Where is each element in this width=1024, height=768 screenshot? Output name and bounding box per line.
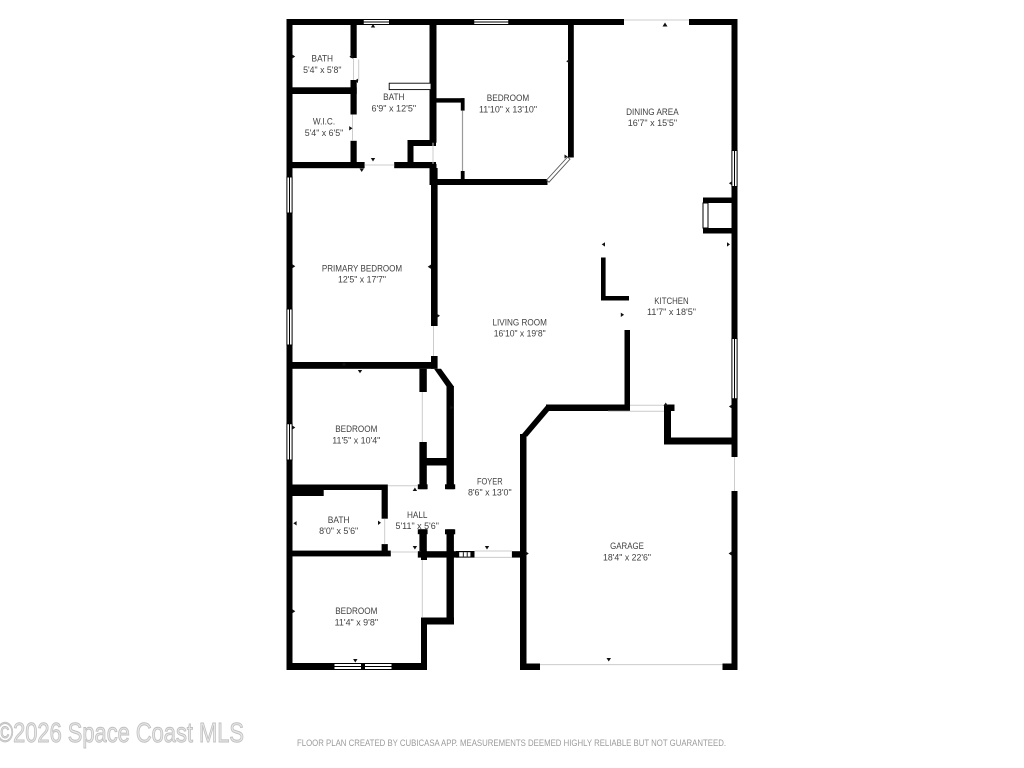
svg-text:18'4" x 22'6": 18'4" x 22'6" <box>603 552 651 562</box>
svg-text:FLOOR PLAN CREATED BY CUBICASA: FLOOR PLAN CREATED BY CUBICASA APP. MEAS… <box>297 738 726 749</box>
svg-text:16'7" x 15'5": 16'7" x 15'5" <box>628 118 677 128</box>
svg-text:FOYER: FOYER <box>477 477 503 487</box>
svg-text:11'5" x 10'4": 11'5" x 10'4" <box>332 435 380 445</box>
svg-text:16'10" x 19'8": 16'10" x 19'8" <box>494 329 546 339</box>
svg-text:LIVING ROOM: LIVING ROOM <box>493 317 547 327</box>
svg-text:6'9" x 12'5": 6'9" x 12'5" <box>372 103 417 113</box>
svg-text:11'7" x 18'5": 11'7" x 18'5" <box>647 307 696 317</box>
svg-text:8'6" x 13'0": 8'6" x 13'0" <box>468 488 512 498</box>
svg-text:5'11" x 5'6": 5'11" x 5'6" <box>396 521 439 531</box>
svg-text:8'0" x 5'6": 8'0" x 5'6" <box>319 526 358 536</box>
svg-text:W.I.C.: W.I.C. <box>313 117 335 127</box>
svg-text:BATH: BATH <box>383 92 404 102</box>
svg-text:DINING AREA: DINING AREA <box>626 107 679 117</box>
svg-text:PRIMARY BEDROOM: PRIMARY BEDROOM <box>322 264 402 274</box>
svg-text:5'4" x 6'5": 5'4" x 6'5" <box>305 128 344 138</box>
svg-text:HALL: HALL <box>407 510 428 520</box>
svg-text:BATH: BATH <box>312 54 334 64</box>
svg-text:5'4" x 5'8": 5'4" x 5'8" <box>303 65 341 75</box>
svg-text:BEDROOM: BEDROOM <box>335 606 377 616</box>
svg-text:BATH: BATH <box>328 515 350 525</box>
svg-text:©2026 Space Coast MLS: ©2026 Space Coast MLS <box>0 717 244 748</box>
svg-text:GARAGE: GARAGE <box>610 541 644 551</box>
svg-text:11'4" x 9'8": 11'4" x 9'8" <box>335 617 378 627</box>
svg-text:12'5" x 17'7": 12'5" x 17'7" <box>338 275 386 285</box>
svg-text:BEDROOM: BEDROOM <box>487 93 529 103</box>
svg-text:11'10" x 13'10": 11'10" x 13'10" <box>479 104 537 114</box>
svg-text:BEDROOM: BEDROOM <box>335 424 377 434</box>
svg-text:KITCHEN: KITCHEN <box>654 296 688 306</box>
